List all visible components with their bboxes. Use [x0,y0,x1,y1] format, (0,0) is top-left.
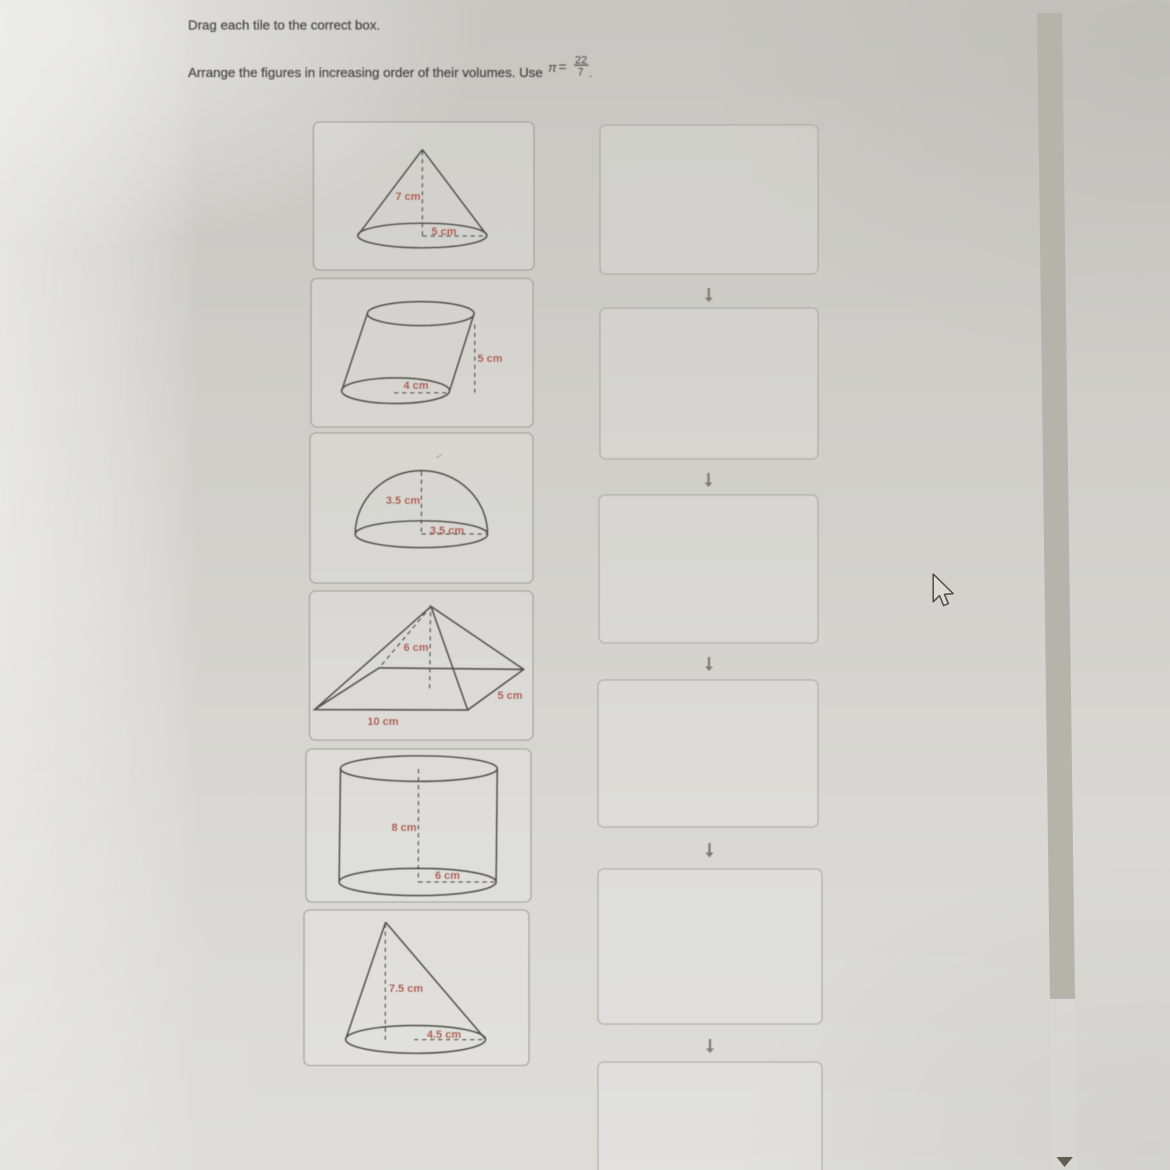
svg-text:=: = [559,59,567,75]
svg-text:10 cm: 10 cm [367,716,398,728]
svg-text:4 cm: 4 cm [403,380,428,392]
svg-text:5 cm: 5 cm [477,353,502,365]
svg-text:7: 7 [578,67,584,79]
svg-text:π: π [548,60,557,75]
svg-text:5 cm: 5 cm [431,226,456,238]
svg-text:6 cm: 6 cm [435,870,460,882]
svg-text:7 cm: 7 cm [395,191,420,203]
svg-text:7.5 cm: 7.5 cm [389,983,423,995]
svg-text:4.5 cm: 4.5 cm [427,1029,461,1041]
svg-text:Arrange the figures in increas: Arrange the figures in increasing order … [188,65,543,80]
svg-text:.: . [589,66,592,80]
svg-text:3.5 cm: 3.5 cm [430,525,464,537]
svg-text:Drag each tile to the correct: Drag each tile to the correct box. [188,18,380,33]
svg-text:3.5 cm: 3.5 cm [386,495,420,507]
svg-text:8 cm: 8 cm [391,822,416,834]
svg-text:6 cm: 6 cm [403,642,428,654]
svg-text:5 cm: 5 cm [497,690,522,702]
